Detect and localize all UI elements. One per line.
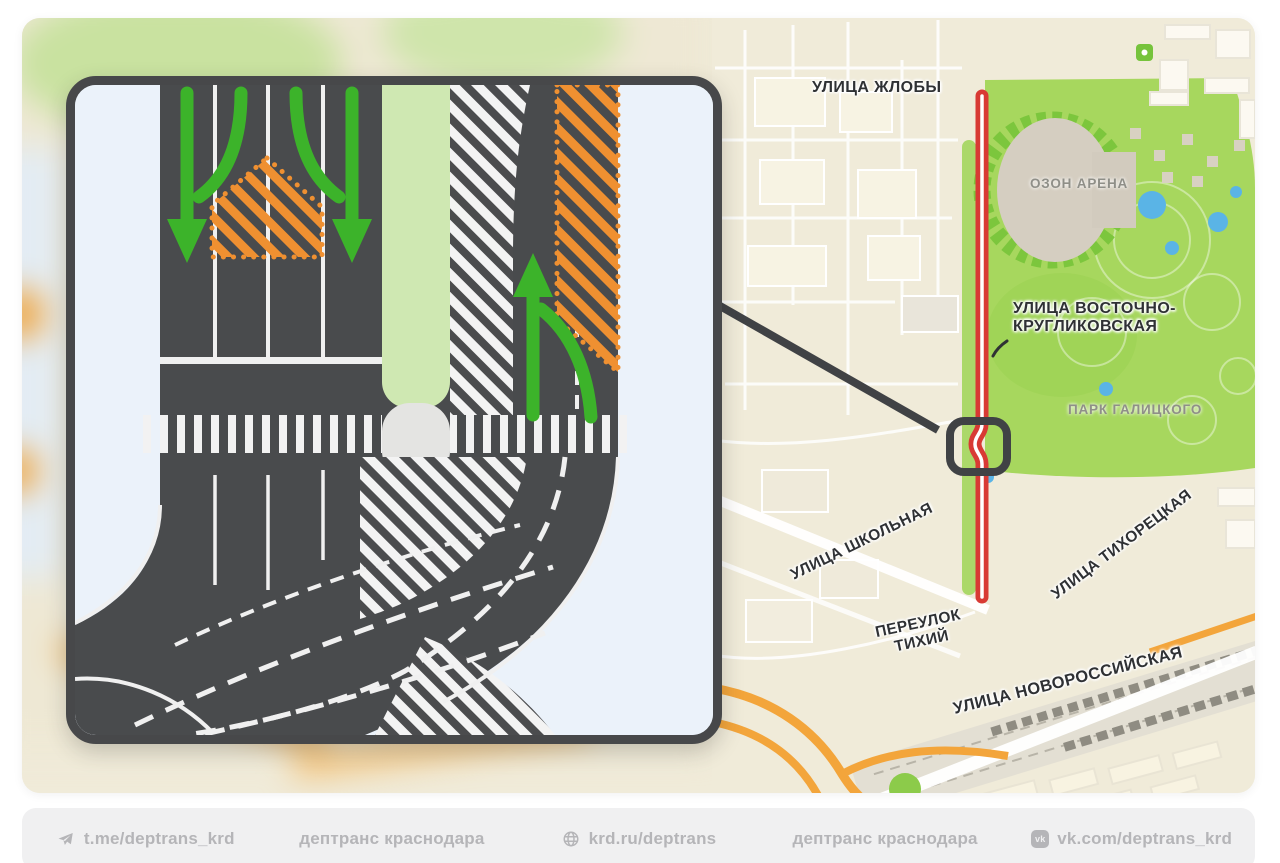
poi-label-park: ПАРК ГАЛИЦКОГО (1068, 402, 1202, 417)
vk-icon: vk (1031, 830, 1049, 848)
road-scheme-drawing (75, 85, 713, 735)
footer-bar: t.me/deptrans_krd дептранс краснодара kr… (22, 808, 1255, 863)
stop-line (160, 357, 382, 364)
route-highlight (975, 96, 982, 597)
poi-marker (1136, 44, 1153, 61)
green-median (382, 85, 450, 408)
street-label-vostochno: УЛИЦА ВОСТОЧНО- КРУГЛИКОВСКАЯ (1013, 300, 1176, 336)
globe-icon (561, 829, 581, 849)
footer-link-telegram[interactable]: t.me/deptrans_krd (22, 829, 269, 849)
footer-text-deptrans-1[interactable]: дептранс краснодара (269, 829, 516, 849)
street-label-zhloby: УЛИЦА ЖЛОБЫ (812, 79, 941, 97)
footer-text-deptrans-2[interactable]: дептранс краснодара (762, 829, 1009, 849)
crosswalk-right (450, 415, 628, 453)
footer-link-vk[interactable]: vk vk.com/deptrans_krd (1008, 829, 1255, 849)
infographic-stage: УЛИЦА ЖЛОБЫ УЛИЦА ВОСТОЧНО- КРУГЛИКОВСКА… (0, 0, 1280, 863)
poi-label-arena: ОЗОН АРЕНА (1030, 176, 1128, 191)
map-card: УЛИЦА ЖЛОБЫ УЛИЦА ВОСТОЧНО- КРУГЛИКОВСКА… (22, 18, 1255, 793)
footer-link-site[interactable]: krd.ru/deptrans (515, 829, 762, 849)
roadside-green (962, 140, 976, 595)
telegram-icon (56, 829, 76, 849)
crosswalk-left (143, 415, 382, 453)
road-scheme-inset[interactable] (66, 76, 722, 744)
